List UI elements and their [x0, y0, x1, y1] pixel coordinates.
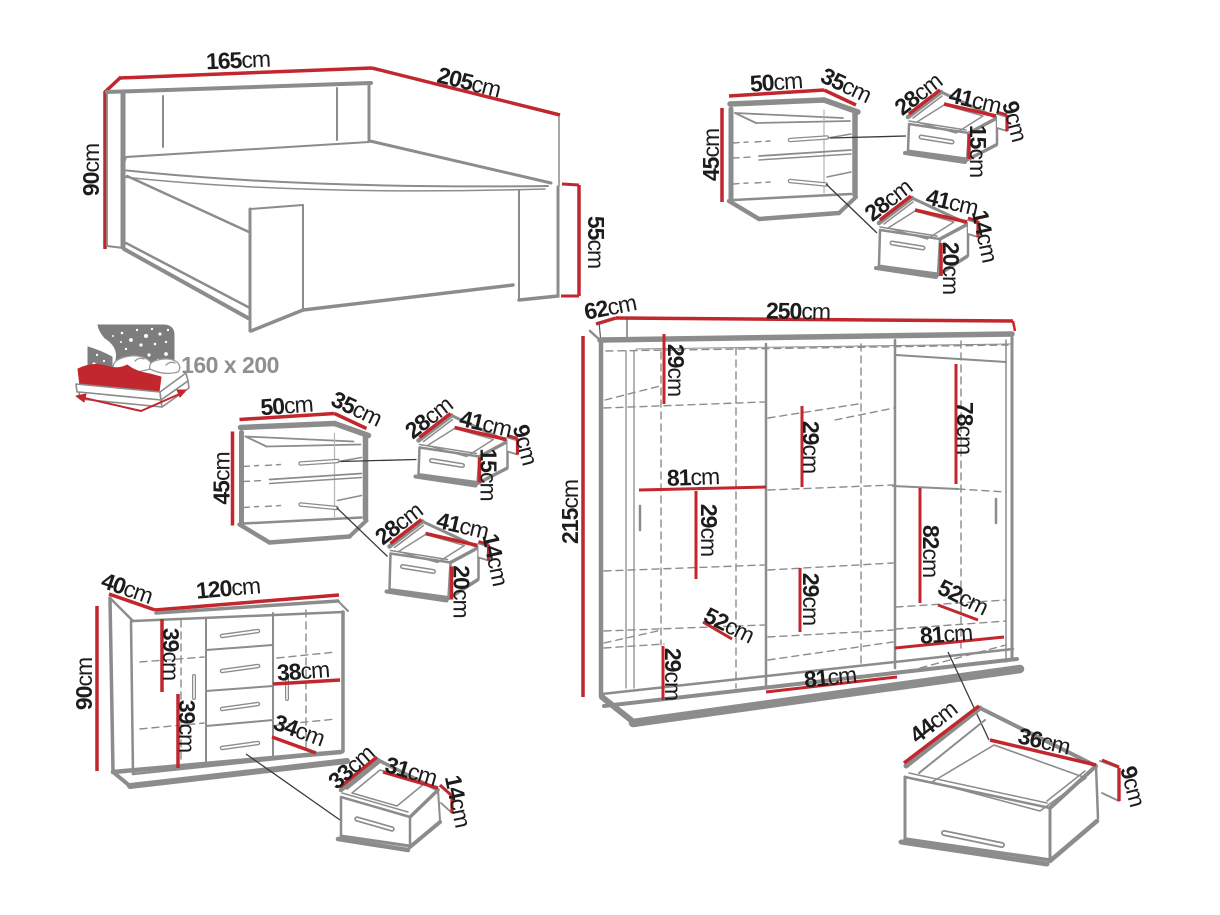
svg-text:38cm: 38cm [276, 656, 330, 686]
svg-text:39cm: 39cm [158, 628, 184, 680]
svg-text:90cm: 90cm [78, 144, 104, 196]
svg-text:250cm: 250cm [766, 297, 830, 324]
svg-text:45cm: 45cm [698, 129, 724, 181]
svg-text:29cm: 29cm [798, 573, 824, 625]
svg-text:15cm: 15cm [965, 125, 991, 177]
svg-text:78cm: 78cm [952, 402, 978, 454]
svg-text:29cm: 29cm [663, 344, 689, 396]
svg-text:55cm: 55cm [583, 216, 609, 268]
svg-text:160 x 200: 160 x 200 [181, 352, 279, 378]
svg-text:20cm: 20cm [938, 242, 964, 294]
svg-text:39cm: 39cm [174, 700, 200, 752]
svg-text:82cm: 82cm [918, 525, 944, 577]
svg-text:165cm: 165cm [205, 46, 270, 75]
svg-text:81cm: 81cm [666, 463, 719, 491]
svg-text:120cm: 120cm [195, 572, 261, 603]
svg-text:50cm: 50cm [749, 67, 803, 97]
svg-text:29cm: 29cm [798, 421, 824, 473]
svg-text:29cm: 29cm [696, 504, 722, 556]
svg-text:81cm: 81cm [803, 661, 858, 692]
svg-text:29cm: 29cm [660, 648, 686, 700]
svg-text:81cm: 81cm [919, 619, 973, 649]
svg-text:215cm: 215cm [557, 480, 583, 544]
svg-text:90cm: 90cm [71, 658, 97, 710]
